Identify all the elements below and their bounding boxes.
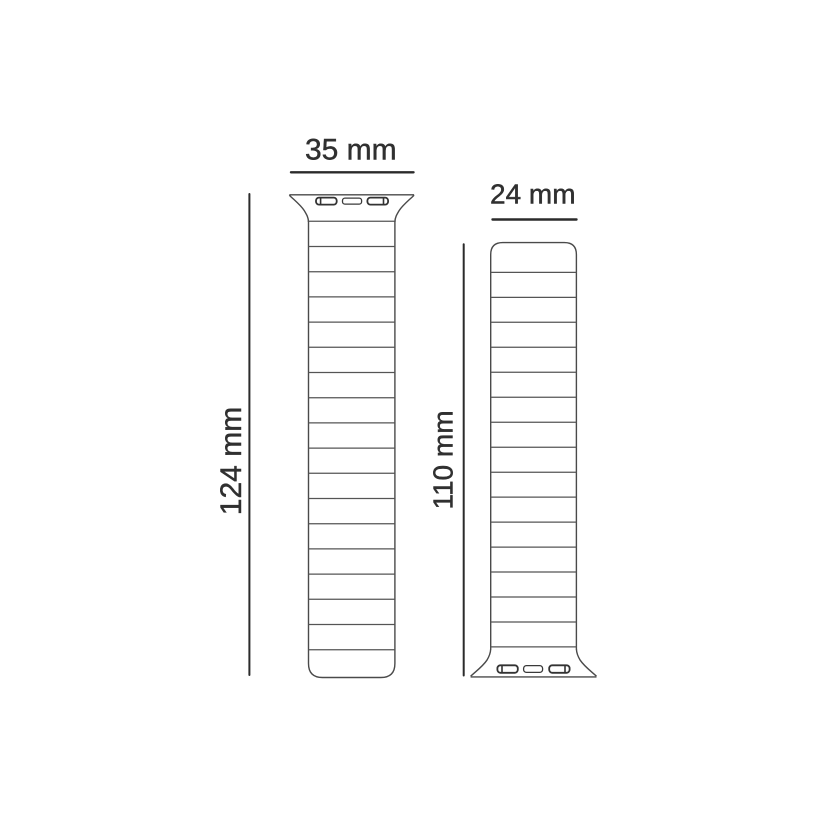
svg-text:124 mm: 124 mm — [215, 407, 248, 515]
svg-text:35 mm: 35 mm — [305, 134, 397, 167]
svg-text:24 mm: 24 mm — [490, 178, 576, 209]
svg-text:110 mm: 110 mm — [428, 410, 459, 509]
